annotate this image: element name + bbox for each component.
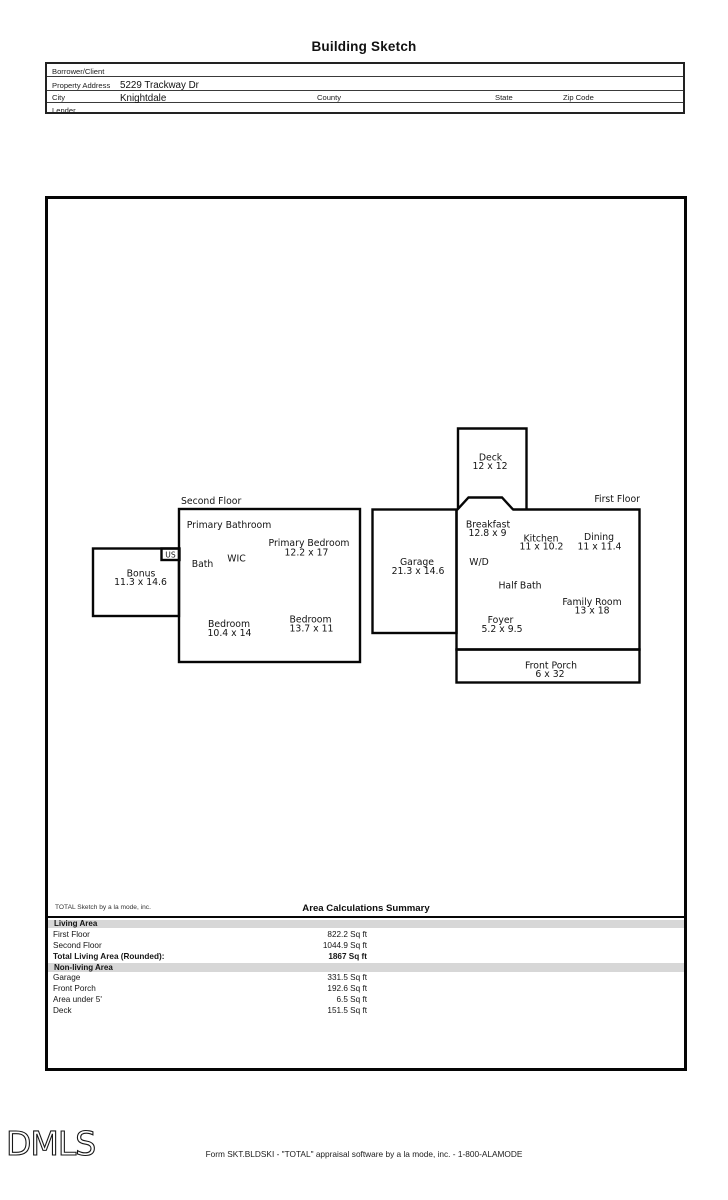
room-dims-foyer: 5.2 x 9.5 <box>482 624 523 635</box>
wall-bay-window <box>457 498 514 511</box>
first-floor-title: First Floor <box>594 494 640 505</box>
floor-plan-svg: Second Floor Primary Bathroom Primary Be… <box>0 0 728 1200</box>
room-dims-bonus: 11.3 x 14.6 <box>114 577 167 588</box>
area-under-5-label: Area under 5' <box>53 995 102 1006</box>
second-floor-area-label: Second Floor <box>53 941 102 952</box>
room-label-half-bath: Half Bath <box>498 581 541 592</box>
living-area-header: Living Area <box>48 920 684 929</box>
room-dims-family-room: 13 x 18 <box>574 606 609 617</box>
summary-divider-bar <box>48 916 684 919</box>
room-label-wd: W/D <box>469 557 488 568</box>
garage-area-label: Garage <box>53 973 80 984</box>
room-dims-bedroom-right: 13.7 x 11 <box>290 624 334 635</box>
first-floor-area-value: 822.2 Sq ft <box>48 930 367 941</box>
room-dims-bedroom-left: 10.4 x 14 <box>208 628 252 639</box>
nonliving-area-header: Non-living Area <box>48 963 684 972</box>
room-label-wic: WIC <box>227 554 245 565</box>
room-dims-deck: 12 x 12 <box>472 461 507 472</box>
room-dims-front-porch: 6 x 32 <box>535 669 564 680</box>
room-dims-dining: 11 x 11.4 <box>578 542 622 553</box>
summary-row-first-floor: 822.2 Sq ft First Floor <box>48 930 684 941</box>
total-living-area-label: Total Living Area (Rounded): <box>53 952 164 963</box>
building-sketch-page: Building Sketch Borrower/Client Property… <box>0 0 728 1200</box>
front-porch-area-label: Front Porch <box>53 984 96 995</box>
deck-area-label: Deck <box>53 1006 72 1017</box>
room-label-bath: Bath <box>192 559 214 570</box>
garage-area-value: 331.5 Sq ft <box>48 973 367 984</box>
summary-row-total-living: 1867 Sq ft Total Living Area (Rounded): <box>48 952 684 963</box>
footer-form-line: Form SKT.BLDSKI - "TOTAL" appraisal soft… <box>0 1149 728 1159</box>
summary-row-garage: 331.5 Sq ft Garage <box>48 973 684 984</box>
room-label-primary-bathroom: Primary Bathroom <box>187 520 272 531</box>
first-floor-area-label: First Floor <box>53 930 90 941</box>
summary-row-area-under-5: 6.5 Sq ft Area under 5' <box>48 995 684 1006</box>
room-dims-breakfast: 12.8 x 9 <box>468 528 506 539</box>
room-dims-kitchen: 11 x 10.2 <box>520 542 564 553</box>
summary-row-second-floor: 1044.9 Sq ft Second Floor <box>48 941 684 952</box>
deck-area-value: 151.5 Sq ft <box>48 1006 367 1017</box>
wall-second-floor-main <box>179 509 360 662</box>
summary-row-front-porch: 192.6 Sq ft Front Porch <box>48 984 684 995</box>
room-label-stairs: US <box>165 551 176 560</box>
summary-row-deck: 151.5 Sq ft Deck <box>48 1006 684 1017</box>
second-floor-title: Second Floor <box>181 496 241 507</box>
area-calculations-title: Area Calculations Summary <box>45 903 687 914</box>
room-dims-garage: 21.3 x 14.6 <box>392 566 445 577</box>
room-dims-primary-bedroom: 12.2 x 17 <box>285 548 329 559</box>
